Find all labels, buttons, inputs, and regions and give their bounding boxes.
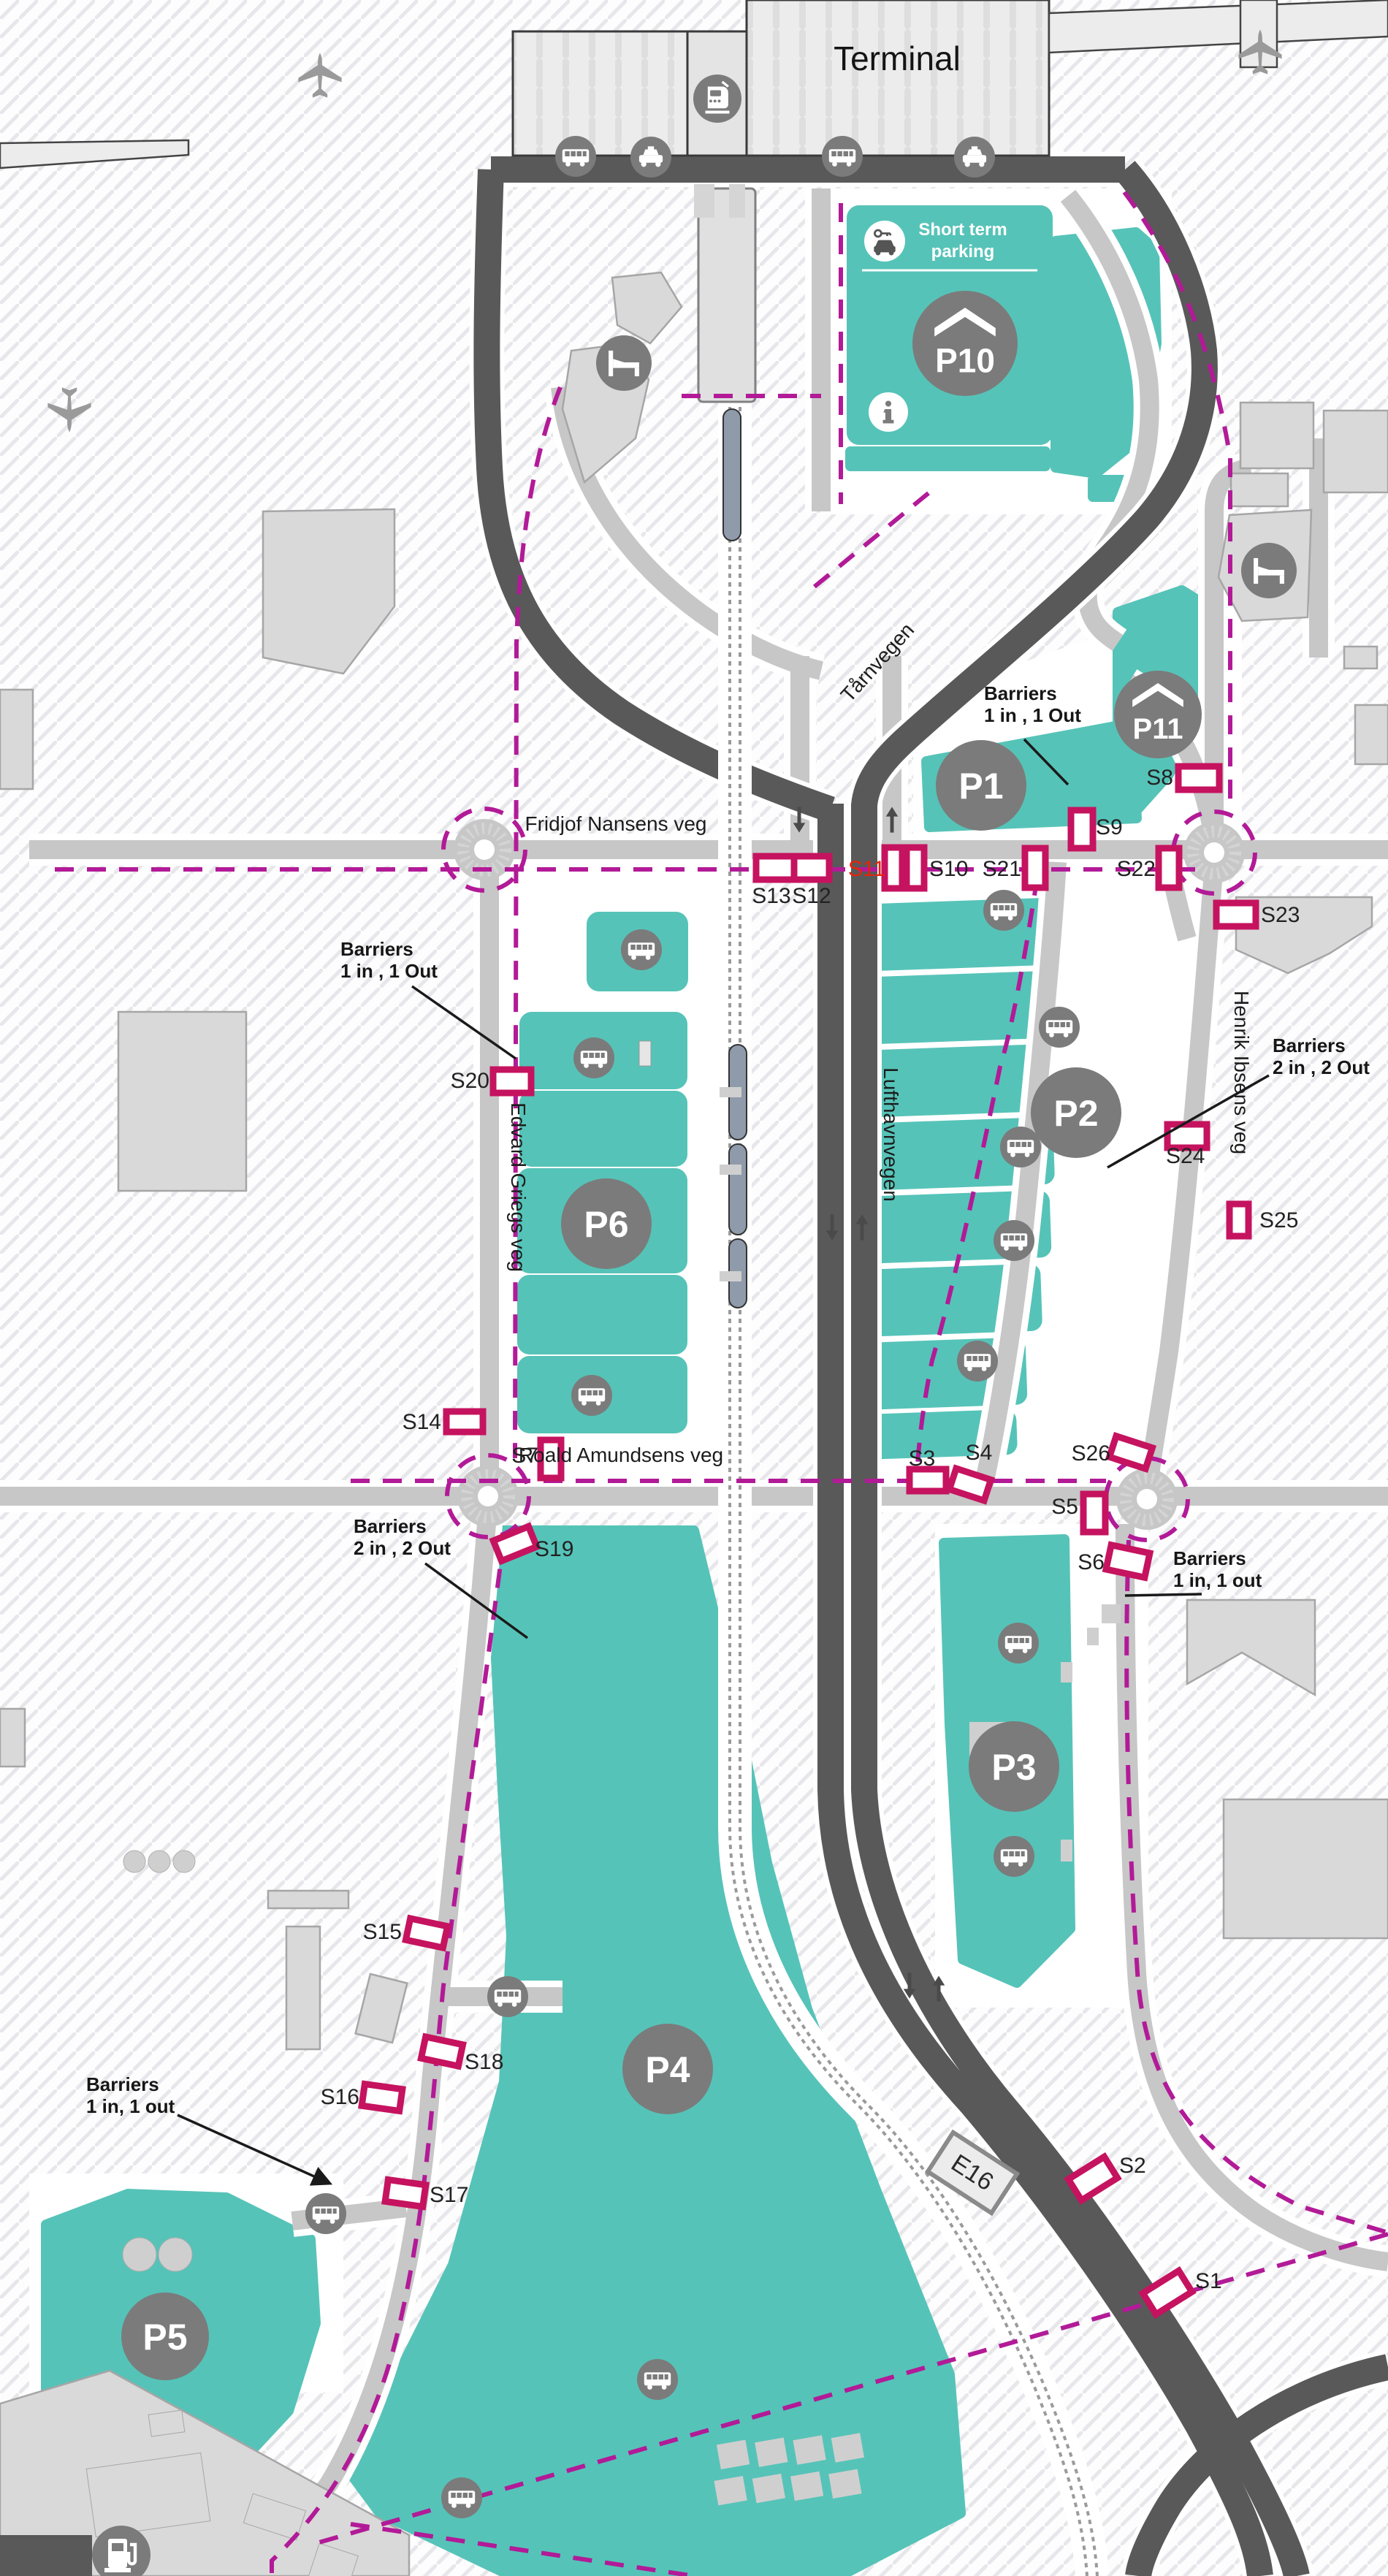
rail-station-building [698,188,755,402]
sensor-S8 [1178,766,1219,790]
use-shape [630,137,671,178]
sensor-box [1071,810,1093,848]
sensor-S10-left [885,847,902,888]
use-shape [596,335,652,391]
rect-shape [1344,647,1377,668]
rect-shape [790,2472,823,2501]
sensor-box [1216,903,1256,926]
sensor-label-S14: S14 [403,1410,441,1434]
barriers-p3-leader-line [1125,1594,1202,1596]
rect-shape [874,903,1054,966]
sensor-label-S13: S13 [752,884,790,908]
bus-icon [994,1836,1034,1877]
sensor-label-S4: S4 [966,1441,993,1465]
rect-shape [522,1280,682,1349]
rail-platform [729,1144,747,1235]
train-icon [693,75,741,123]
rect-shape [793,2435,825,2464]
parking-area-P6: P6 [561,1178,652,1269]
sensor-label-S21: S21 [983,857,1021,881]
rail-platform [723,409,741,541]
bus-icon [487,1976,528,2017]
parking-area-P1: P1 [936,740,1026,831]
barriers-p4-north-label: Barriers [354,1515,427,1537]
rect-shape [720,1087,741,1097]
sensor-S18 [421,2037,462,2066]
sensor-box [756,856,794,880]
sensor-label-S22: S22 [1117,857,1156,881]
rect-shape [831,2433,864,2462]
sensor-label-S9: S9 [1096,815,1123,839]
use-shape [994,1220,1034,1261]
sensor-box [493,1070,531,1093]
sensor-label-S20: S20 [451,1069,489,1093]
sensor-S3 [910,1469,946,1491]
bed-icon [596,335,652,391]
barriers-p1-label: 1 in , 1 Out [984,704,1081,726]
bus-icon [571,1375,612,1416]
rect-shape [850,451,1045,466]
sensor-box [405,1918,447,1948]
info-icon [869,392,908,432]
bus-icon [573,1037,614,1078]
parking-label: P1 [958,766,1003,807]
rect-shape [0,1709,25,1767]
street-label-edvard-griegs-veg: Edvard Griegs veg [507,1102,530,1272]
rect-shape [729,184,745,218]
rect-shape [1087,1628,1099,1645]
parking-area-P10: P10 [912,291,1018,396]
sensor-label-S17: S17 [430,2183,468,2207]
rect-shape [1231,473,1288,506]
keycar-icon [864,221,905,262]
street-label-roald-amundsens-veg: Roald Amundsens veg [519,1444,723,1466]
sensor-S5 [1083,1494,1105,1532]
airport-parking-map: P10P11P1P2P6P3P4P5 Terminal Short term p… [0,0,1388,2576]
sensor-box [885,847,902,888]
parking-area-P5: P5 [121,2293,209,2380]
use-shape [998,1623,1039,1664]
street-label-fridjof-nansens-veg: Fridjof Nansens veg [525,812,706,835]
rect-shape [148,2410,185,2436]
use-shape [822,136,863,177]
circle-shape [478,1486,498,1506]
barriers-p4-north-label: 2 in , 2 Out [354,1537,451,1559]
use-shape [487,1976,528,2017]
sensor-label-S26: S26 [1072,1441,1110,1466]
sensor-S23 [1216,903,1256,926]
circle-shape [474,839,495,860]
sensor-label-S11: S11 [848,857,885,881]
terminal-west-building [513,31,687,156]
sensor-label-S25: S25 [1259,1208,1298,1232]
terminal-label: Terminal [834,39,961,77]
sensor-label-S10: S10 [929,857,968,881]
sensor-box [385,2180,426,2207]
parking-area-P11: P11 [1114,671,1202,758]
use-shape [869,392,908,432]
roundabout [1116,1468,1178,1530]
use-shape [573,1037,614,1078]
terminal-main-building [747,0,1049,156]
rect-shape [714,2476,747,2505]
roundabout [457,1466,519,1527]
sensor-box [421,2037,462,2066]
sensor-label-S12: S12 [792,884,831,908]
taxi-icon [954,137,995,178]
use-shape [957,1341,998,1382]
short-term-parking-label-line2: parking [931,242,995,262]
parking-label: P2 [1053,1093,1098,1134]
barriers-p2-label: 2 in , 2 Out [1273,1056,1370,1078]
sensor-S9 [1071,810,1093,848]
barriers-p6-label: 1 in , 1 Out [340,960,438,982]
rect-shape [0,690,33,789]
bus-icon [957,1341,998,1382]
parking-label: P10 [935,341,995,379]
bus-icon [822,136,863,177]
use-shape [555,136,596,177]
rect-shape [268,1891,348,1908]
use-shape [864,221,905,262]
bus-icon [441,2477,482,2518]
roundabout [1183,822,1245,883]
rect-shape [694,184,714,218]
bus-icon [1039,1007,1080,1048]
rect-shape [1102,1604,1121,1623]
sensor-S13 [756,856,794,880]
rect-shape [286,1927,320,2049]
parking-label: P3 [991,1747,1036,1788]
sensor-label-S1: S1 [1195,2269,1222,2293]
sensor-S25 [1229,1204,1248,1236]
sensor-label-S5: S5 [1051,1495,1078,1519]
sensor-label-S2: S2 [1119,2154,1146,2178]
rect-shape [755,2437,788,2466]
sensor-S6 [1106,1545,1150,1577]
bus-icon [998,1623,1039,1664]
sensor-box [910,1469,946,1491]
sensor-box [446,1411,483,1432]
map-canvas: P10P11P1P2P6P3P4P5 Terminal Short term p… [0,0,1388,2576]
sensor-S20 [493,1070,531,1093]
street-label-lufthavnvegen: Lufthavnvegen [880,1067,902,1202]
sensor-label-S18: S18 [465,2050,503,2074]
use-shape [1241,543,1297,598]
use-shape [621,929,662,970]
sensor-label-S16: S16 [321,2085,359,2109]
use-shape [1000,1127,1041,1167]
rect-shape [720,1271,741,1281]
sensor-S21 [1025,848,1045,888]
parking-area-P2: P2 [1031,1067,1121,1158]
bus-icon [994,1220,1034,1261]
circle-shape [1204,842,1224,863]
use-shape [305,2193,346,2234]
barriers-p4-south-label: Barriers [86,2073,159,2095]
sensor-label-S23: S23 [1261,903,1300,927]
rect-shape [828,2469,861,2499]
sensor-box [1229,1204,1248,1236]
circle-shape [173,1851,195,1872]
rect-shape [1324,411,1388,492]
sensor-box [1083,1494,1105,1532]
sensor-S17 [385,2180,426,2207]
sensor-box [1025,848,1045,888]
rect-shape [873,976,1053,1039]
rect-shape [720,1165,741,1175]
barriers-p2-label: Barriers [1273,1034,1346,1056]
sensor-S10 [907,847,924,888]
barriers-p3-label: 1 in, 1 out [1173,1569,1262,1591]
barriers-p4-south-label: 1 in, 1 out [86,2095,175,2117]
rect-shape [1061,1840,1072,1861]
use-shape [994,1836,1034,1877]
sensor-label-S6: S6 [1078,1550,1105,1574]
circle-shape [148,1851,170,1872]
circle-shape [159,2238,192,2271]
bus-icon [1000,1127,1041,1167]
rect-shape [1355,705,1388,764]
sensor-label-S8: S8 [1146,766,1173,790]
sensor-label-S24: S24 [1166,1144,1205,1168]
barriers-p6-label: Barriers [340,938,413,960]
sensor-S22 [1159,848,1179,888]
parking-area-P4: P4 [622,2024,713,2114]
sensor-box [1106,1545,1150,1577]
sensor-label-S3: S3 [909,1447,936,1471]
sensor-S16 [362,2084,403,2111]
taxi-icon [630,137,671,178]
rect-shape [525,1096,682,1162]
sensor-label-S15: S15 [363,1920,402,1944]
sensor-S15 [405,1918,447,1948]
rect-shape [1061,1662,1072,1683]
use-shape [637,2359,678,2400]
use-shape [571,1375,612,1416]
circle-shape [123,2238,156,2271]
sensor-label-S7: S7 [511,1444,538,1468]
sensor-label-S19: S19 [535,1537,573,1561]
use-shape [441,2477,482,2518]
parking-label: P4 [645,2049,690,2090]
bus-icon [305,2193,346,2234]
bus-icon [983,890,1024,931]
rect-shape [752,2474,785,2503]
parking-label: P6 [584,1204,628,1245]
bus-icon [555,136,596,177]
short-term-parking-label-line1: Short term [918,220,1007,240]
sensor-box [1178,766,1219,790]
use-shape [983,890,1024,931]
rect-shape [1224,1799,1388,1938]
barriers-p1-label: Barriers [984,682,1057,704]
barriers-p3-label: Barriers [1173,1547,1246,1569]
rect-shape [1240,403,1313,468]
parking-area-P3: P3 [969,1721,1059,1812]
sensor-box [1159,848,1179,888]
rect-shape [639,1041,651,1066]
use-shape [693,75,741,123]
sensor-box [907,847,924,888]
sensor-box [362,2084,403,2111]
parking-label: P11 [1133,713,1183,745]
sensor-S14 [446,1411,483,1432]
use-shape [1039,1007,1080,1048]
parking-label: P5 [142,2317,187,2358]
rect-shape [118,1012,246,1191]
rect-shape [717,2440,750,2469]
bed-icon [1241,543,1297,598]
bus-icon [621,929,662,970]
bus-icon [637,2359,678,2400]
circle-shape [1137,1489,1157,1509]
circle-shape [123,1851,145,1872]
street-label-henrik-ibsens-veg: Henrik Ibsens veg [1230,991,1253,1154]
use-shape [954,137,995,178]
dark-bar [0,2535,92,2576]
